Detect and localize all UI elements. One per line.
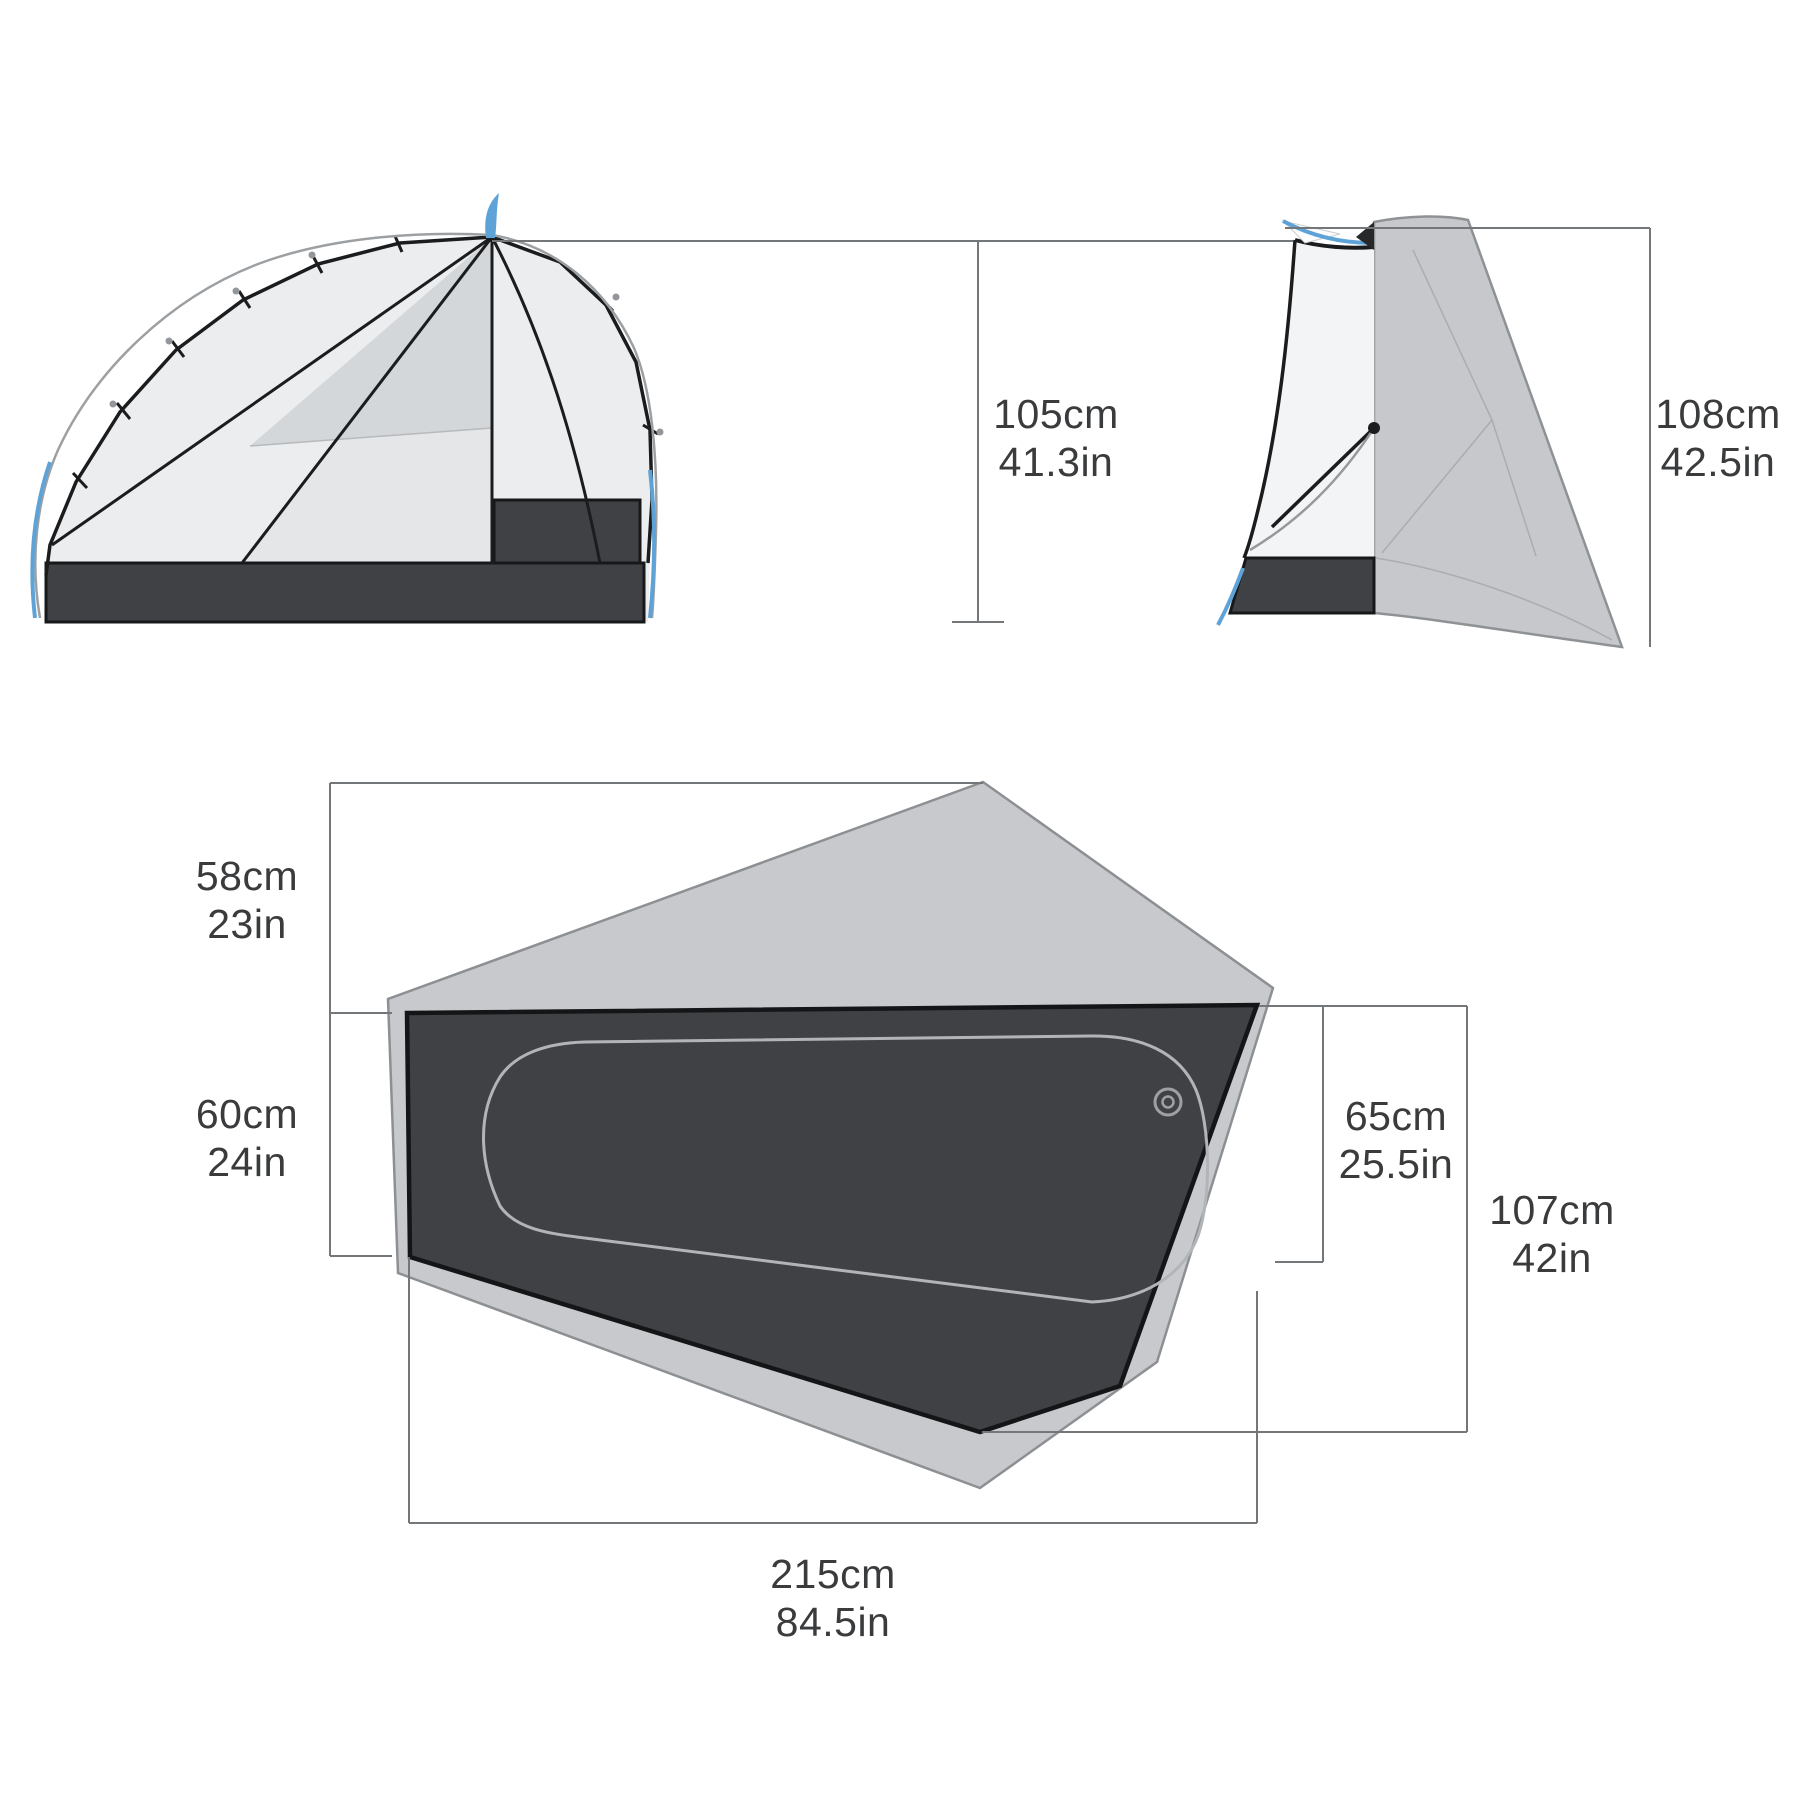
floor-length-imperial-label: 84.5in <box>776 1599 891 1645</box>
foot-width-imperial-label: 25.5in <box>1339 1141 1454 1187</box>
diagram-svg: 105cm 41.3in 108cm 42.5in 58cm 23in 60cm… <box>0 0 1800 1800</box>
side-peak-pole-tip <box>485 193 499 238</box>
side-floor-band <box>46 563 644 622</box>
end-floor-panel <box>1230 558 1374 613</box>
floor-length-metric-label: 215cm <box>770 1551 896 1597</box>
head-width-imperial-label: 24in <box>207 1139 287 1185</box>
floor-plan-illustration <box>388 782 1273 1488</box>
vestibule-depth-metric-label: 58cm <box>196 853 298 899</box>
head-width-metric-label: 60cm <box>196 1091 298 1137</box>
vestibule-depth-imperial-label: 23in <box>207 901 287 947</box>
tent-spec-diagram: 105cm 41.3in 108cm 42.5in 58cm 23in 60cm… <box>0 0 1800 1800</box>
side-floor-head-block <box>494 500 640 563</box>
end-height-metric-label: 108cm <box>1655 391 1781 437</box>
side-view-illustration <box>32 193 663 622</box>
end-view-illustration <box>1218 216 1622 647</box>
end-door-toggle <box>1368 422 1380 434</box>
foot-width-metric-label: 65cm <box>1345 1093 1447 1139</box>
max-width-metric-label: 107cm <box>1489 1187 1615 1233</box>
max-width-imperial-label: 42in <box>1512 1235 1592 1281</box>
end-fly-panel <box>1374 216 1622 647</box>
side-height-imperial-label: 41.3in <box>999 439 1114 485</box>
side-height-metric-label: 105cm <box>993 391 1119 437</box>
end-height-imperial-label: 42.5in <box>1661 439 1776 485</box>
